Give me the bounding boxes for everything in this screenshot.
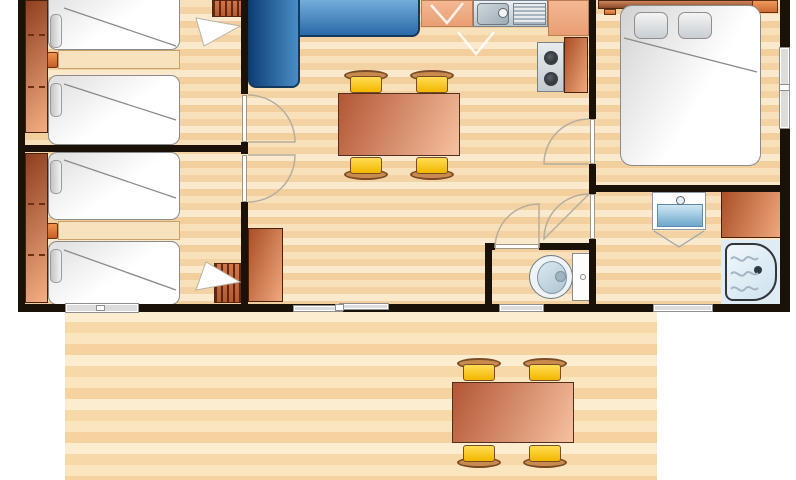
door-leaf [242, 155, 247, 202]
sink-faucet [498, 8, 508, 18]
bed-pillow [634, 12, 668, 39]
door-leaf [242, 95, 247, 142]
cistern-button [580, 274, 586, 280]
kitchen-counter [548, 0, 589, 36]
wall-wc-top [539, 243, 596, 250]
terrace-chair [459, 362, 499, 383]
corner-sofa-side [248, 0, 300, 88]
tub-drain [754, 266, 762, 274]
toilet-bowl [529, 255, 573, 299]
floor-plan [0, 0, 796, 480]
sliding-door-panel [340, 304, 388, 309]
wall-wc-top [485, 243, 495, 250]
chair-seat [350, 157, 382, 174]
wall-wc-left [485, 243, 492, 304]
chair-seat [463, 445, 495, 462]
basin-bowl [657, 204, 703, 227]
wall-left-exterior [18, 0, 25, 311]
pillow [50, 249, 62, 283]
pillow [50, 83, 62, 117]
radiator [212, 0, 243, 17]
single-bed [48, 152, 180, 220]
chair-seat [463, 364, 495, 381]
door-leaf [495, 244, 539, 249]
chair-seat [350, 76, 382, 93]
door-leaf [590, 194, 595, 239]
hob-burner [544, 72, 558, 86]
bathtub [721, 240, 781, 304]
dining-chair [346, 74, 386, 95]
bedside-shelf [58, 50, 180, 69]
kitchen-cabinet [564, 37, 588, 93]
radiator [214, 263, 243, 303]
pillow [50, 160, 62, 194]
storage-cabinet [248, 228, 283, 302]
hob-burner [544, 51, 558, 65]
bathtub-inner [725, 243, 777, 301]
bathroom-cabinet [721, 188, 781, 238]
wall-bedrooms-living [241, 202, 248, 304]
wardrobe-door-line [28, 254, 45, 256]
kitchen-sink [473, 0, 548, 27]
dining-chair [412, 74, 452, 95]
drawer-handle [47, 223, 58, 239]
bed-pillow [678, 12, 712, 39]
wall-between-bedrooms [18, 145, 248, 152]
terrace-table [452, 382, 574, 443]
terrace-chair [525, 362, 565, 383]
wall-living-right [589, 0, 596, 119]
terrace-chair [525, 443, 565, 464]
single-bed [48, 241, 180, 305]
wall-right-exterior [780, 0, 790, 311]
chair-seat [529, 445, 561, 462]
wardrobe-door-line [28, 34, 45, 36]
hob [537, 42, 564, 92]
kitchen-counter [421, 0, 473, 27]
door-leaf [590, 119, 595, 164]
chair-seat [416, 76, 448, 93]
terrace-chair [459, 443, 499, 464]
wardrobe-door-line [28, 86, 45, 88]
wardrobe-door-line [28, 203, 45, 205]
washbasin [652, 192, 706, 230]
chair-seat [416, 157, 448, 174]
pillow [50, 14, 62, 48]
window-handle [779, 84, 790, 91]
window-handle [96, 305, 105, 311]
chair-seat [529, 364, 561, 381]
dining-chair [412, 155, 452, 176]
wall-bedrooms-living [241, 0, 248, 94]
single-bed [48, 75, 180, 145]
wall-bedroom-bathroom [589, 185, 790, 192]
headboard-bracket [604, 9, 616, 15]
toilet-flush [555, 271, 566, 282]
wardrobe [25, 153, 48, 303]
wardrobe [25, 0, 48, 133]
bedside-shelf [58, 221, 180, 240]
sink-drainer [513, 3, 546, 25]
dining-table [338, 93, 460, 156]
single-bed [48, 0, 180, 50]
drawer-handle [47, 52, 58, 68]
window [654, 305, 712, 311]
dining-chair [346, 155, 386, 176]
basin-faucet [676, 196, 685, 205]
sliding-door-handle [335, 304, 344, 311]
window [500, 305, 543, 311]
